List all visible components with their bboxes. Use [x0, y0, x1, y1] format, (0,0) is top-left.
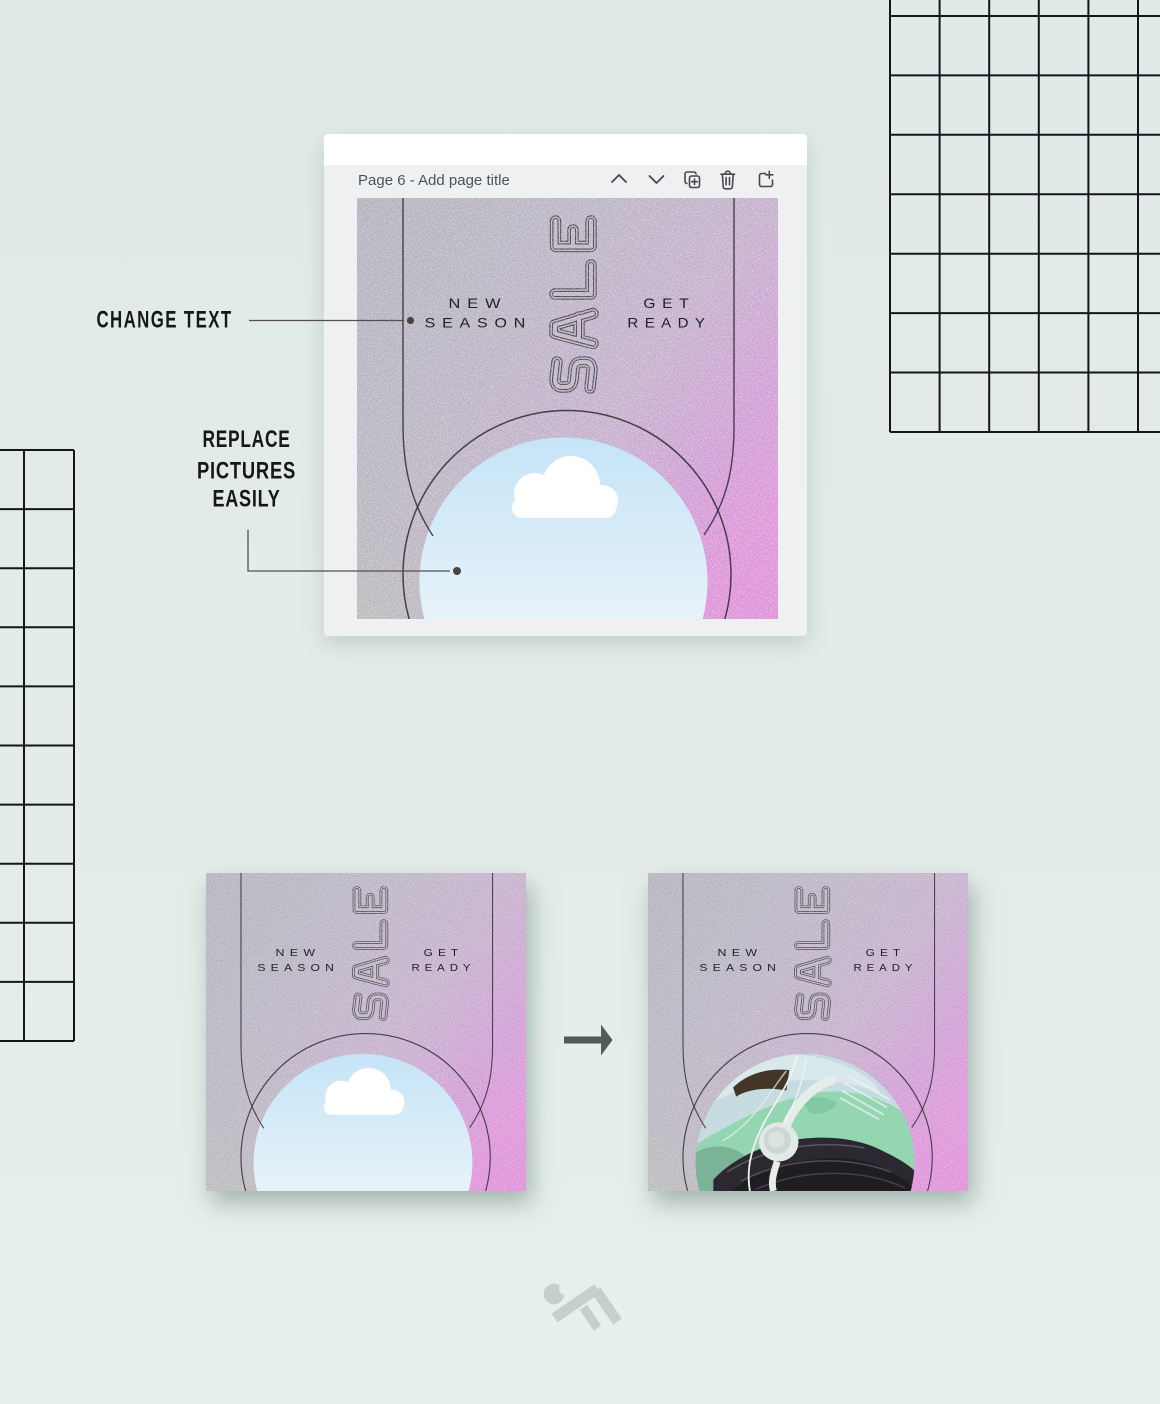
svg-text:PICTURES: PICTURES [197, 458, 296, 485]
svg-text:REPLACE: REPLACE [203, 426, 291, 453]
svg-text:EASILY: EASILY [213, 486, 281, 513]
svg-text:CHANGE TEXT: CHANGE TEXT [97, 307, 233, 334]
